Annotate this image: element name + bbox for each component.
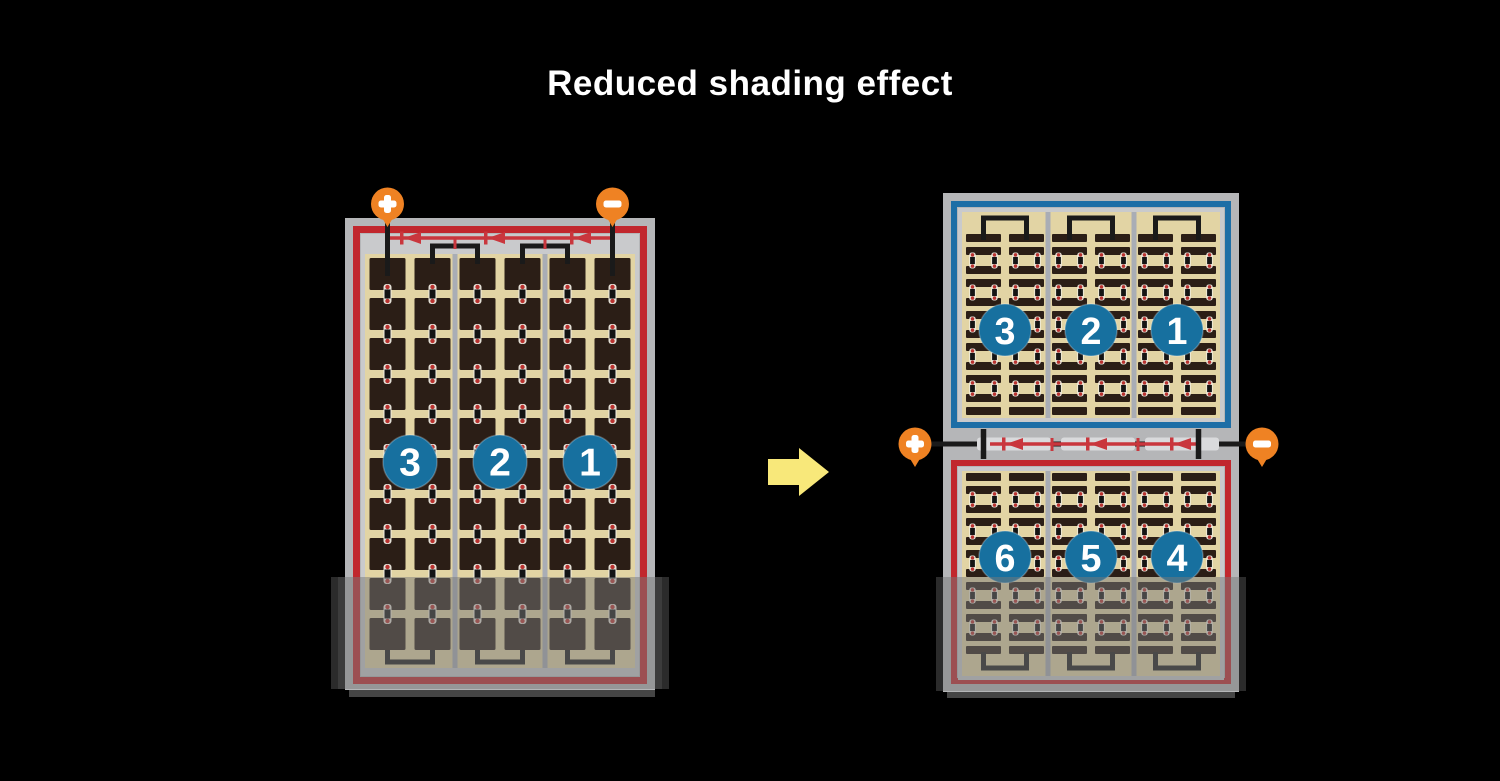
section-badge: 2 [1065,304,1117,356]
plus-terminal [899,428,932,468]
transform-arrow-icon [768,448,829,496]
minus-terminal [1246,428,1279,468]
right-module: 321654 [899,193,1279,698]
section-number: 2 [489,442,511,485]
section-number: 1 [1167,310,1188,352]
minus-icon [1253,441,1271,448]
shading-overlay-left [331,577,669,689]
page-title: Reduced shading effect [0,64,1500,104]
section-number: 3 [399,442,421,485]
section-number: 5 [1081,537,1102,579]
section-badge: 4 [1151,531,1203,583]
left-module: 321 [331,188,669,698]
right-top-half: 321 [943,193,1239,436]
section-number: 1 [579,442,601,485]
section-number: 4 [1167,537,1188,579]
section-badge: 5 [1065,531,1117,583]
section-number: 2 [1081,310,1102,352]
section-badge: 3 [383,435,437,489]
shading-overlay-right [936,577,1246,691]
section-badge: 1 [1151,304,1203,356]
diagram-canvas: 321321654 [0,0,1500,781]
section-number: 3 [995,310,1016,352]
section-badge: 3 [979,304,1031,356]
minus-icon [604,201,622,208]
section-badge: 2 [473,435,527,489]
diagram-page: Reduced shading effect 321321654 [0,0,1500,781]
section-badge: 1 [563,435,617,489]
section-badge: 6 [979,531,1031,583]
section-number: 6 [995,537,1016,579]
